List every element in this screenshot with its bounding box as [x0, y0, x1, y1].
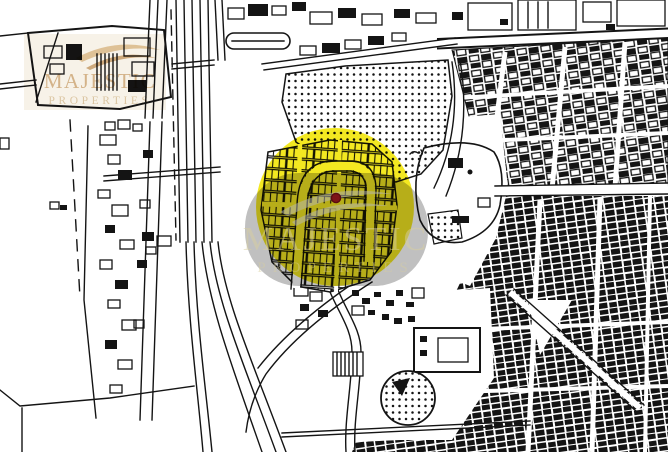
dotted-patch-small: [428, 210, 462, 244]
location-marker-icon: [331, 193, 340, 202]
city-map-canvas: MAJESTIC PROPERTIES MAJESTIC PROPERTIES: [0, 0, 668, 452]
watermark-top-left-tagline: PROPERTIES: [48, 95, 151, 107]
hatched-building: [333, 352, 363, 376]
map-screenshot: MAJESTIC PROPERTIES MAJESTIC PROPERTIES: [0, 0, 668, 452]
watermark-center-name: MAJESTIC: [243, 221, 429, 258]
watermark-center-tagline: PROPERTIES: [257, 260, 414, 276]
watermark-top-left-name: MAJESTIC: [44, 69, 156, 93]
watermark-top-left: MAJESTIC PROPERTIES: [24, 34, 166, 110]
watermark-center: MAJESTIC PROPERTIES: [243, 173, 429, 286]
